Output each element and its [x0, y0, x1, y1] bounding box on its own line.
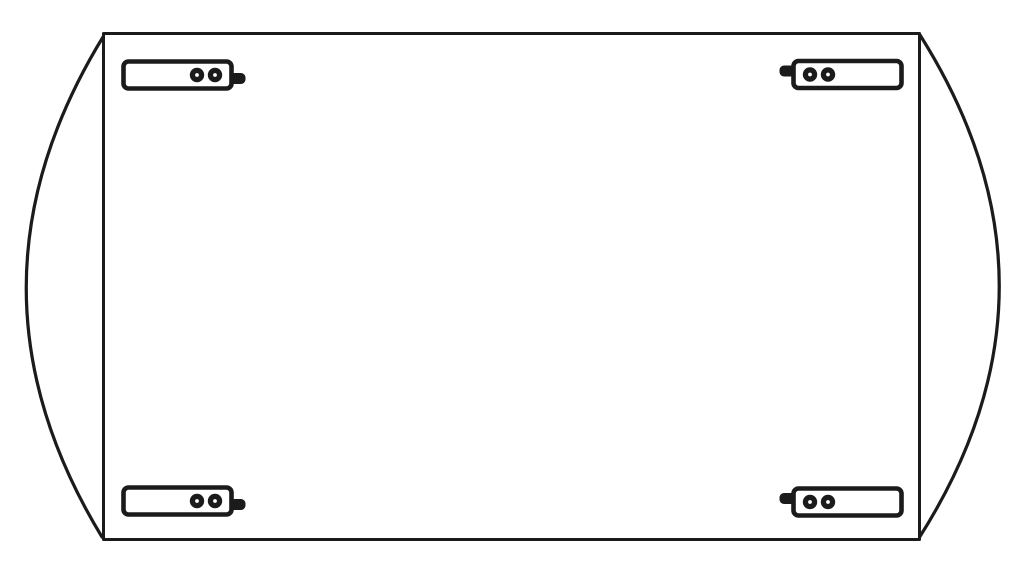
hinge-bracket-bottom-right	[780, 489, 902, 516]
screw-center-dot	[195, 73, 199, 77]
screw-center-dot	[808, 500, 812, 504]
right-drop-leaf	[919, 35, 999, 538]
screw-center-dot	[195, 499, 199, 503]
screw-center-dot	[826, 500, 830, 504]
tabletop-diagram	[0, 0, 1036, 584]
screw-center-dot	[213, 499, 217, 503]
hinge-bracket-top-left	[124, 62, 246, 89]
screw-center-dot	[213, 73, 217, 77]
screw-center-dot	[826, 73, 830, 77]
hinge-bracket-top-right	[780, 61, 902, 88]
hinge-bracket-bottom-left	[124, 488, 246, 515]
left-drop-leaf	[26, 37, 103, 537]
screw-center-dot	[808, 73, 812, 77]
tabletop-panel	[104, 34, 920, 540]
drawing-canvas	[0, 0, 1036, 584]
